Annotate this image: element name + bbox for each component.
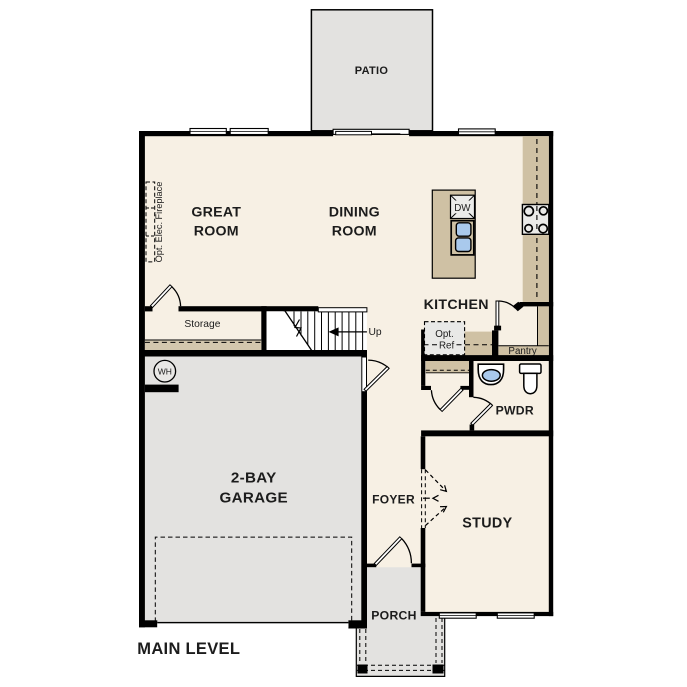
svg-text:2-BAY: 2-BAY bbox=[231, 470, 277, 487]
svg-text:DW: DW bbox=[454, 203, 471, 214]
svg-text:Storage: Storage bbox=[184, 319, 220, 330]
svg-text:DINING: DINING bbox=[329, 205, 380, 221]
svg-text:GARAGE: GARAGE bbox=[219, 490, 287, 507]
svg-text:ROOM: ROOM bbox=[194, 224, 239, 240]
svg-text:KITCHEN: KITCHEN bbox=[424, 297, 489, 313]
svg-text:Opt.: Opt. bbox=[435, 329, 454, 340]
svg-text:GREAT: GREAT bbox=[191, 205, 241, 221]
svg-text:Ref: Ref bbox=[439, 341, 455, 352]
svg-text:Opt. Elec. Fireplace: Opt. Elec. Fireplace bbox=[154, 182, 164, 263]
svg-text:STUDY: STUDY bbox=[462, 516, 512, 532]
svg-text:PORCH: PORCH bbox=[371, 608, 417, 622]
svg-text:Up: Up bbox=[369, 327, 382, 338]
svg-text:ROOM: ROOM bbox=[332, 224, 377, 240]
svg-text:FOYER: FOYER bbox=[372, 493, 415, 507]
svg-text:PWDR: PWDR bbox=[496, 403, 534, 417]
svg-text:PATIO: PATIO bbox=[355, 65, 389, 77]
svg-text:MAIN LEVEL: MAIN LEVEL bbox=[137, 640, 240, 658]
svg-text:WH: WH bbox=[158, 366, 172, 376]
